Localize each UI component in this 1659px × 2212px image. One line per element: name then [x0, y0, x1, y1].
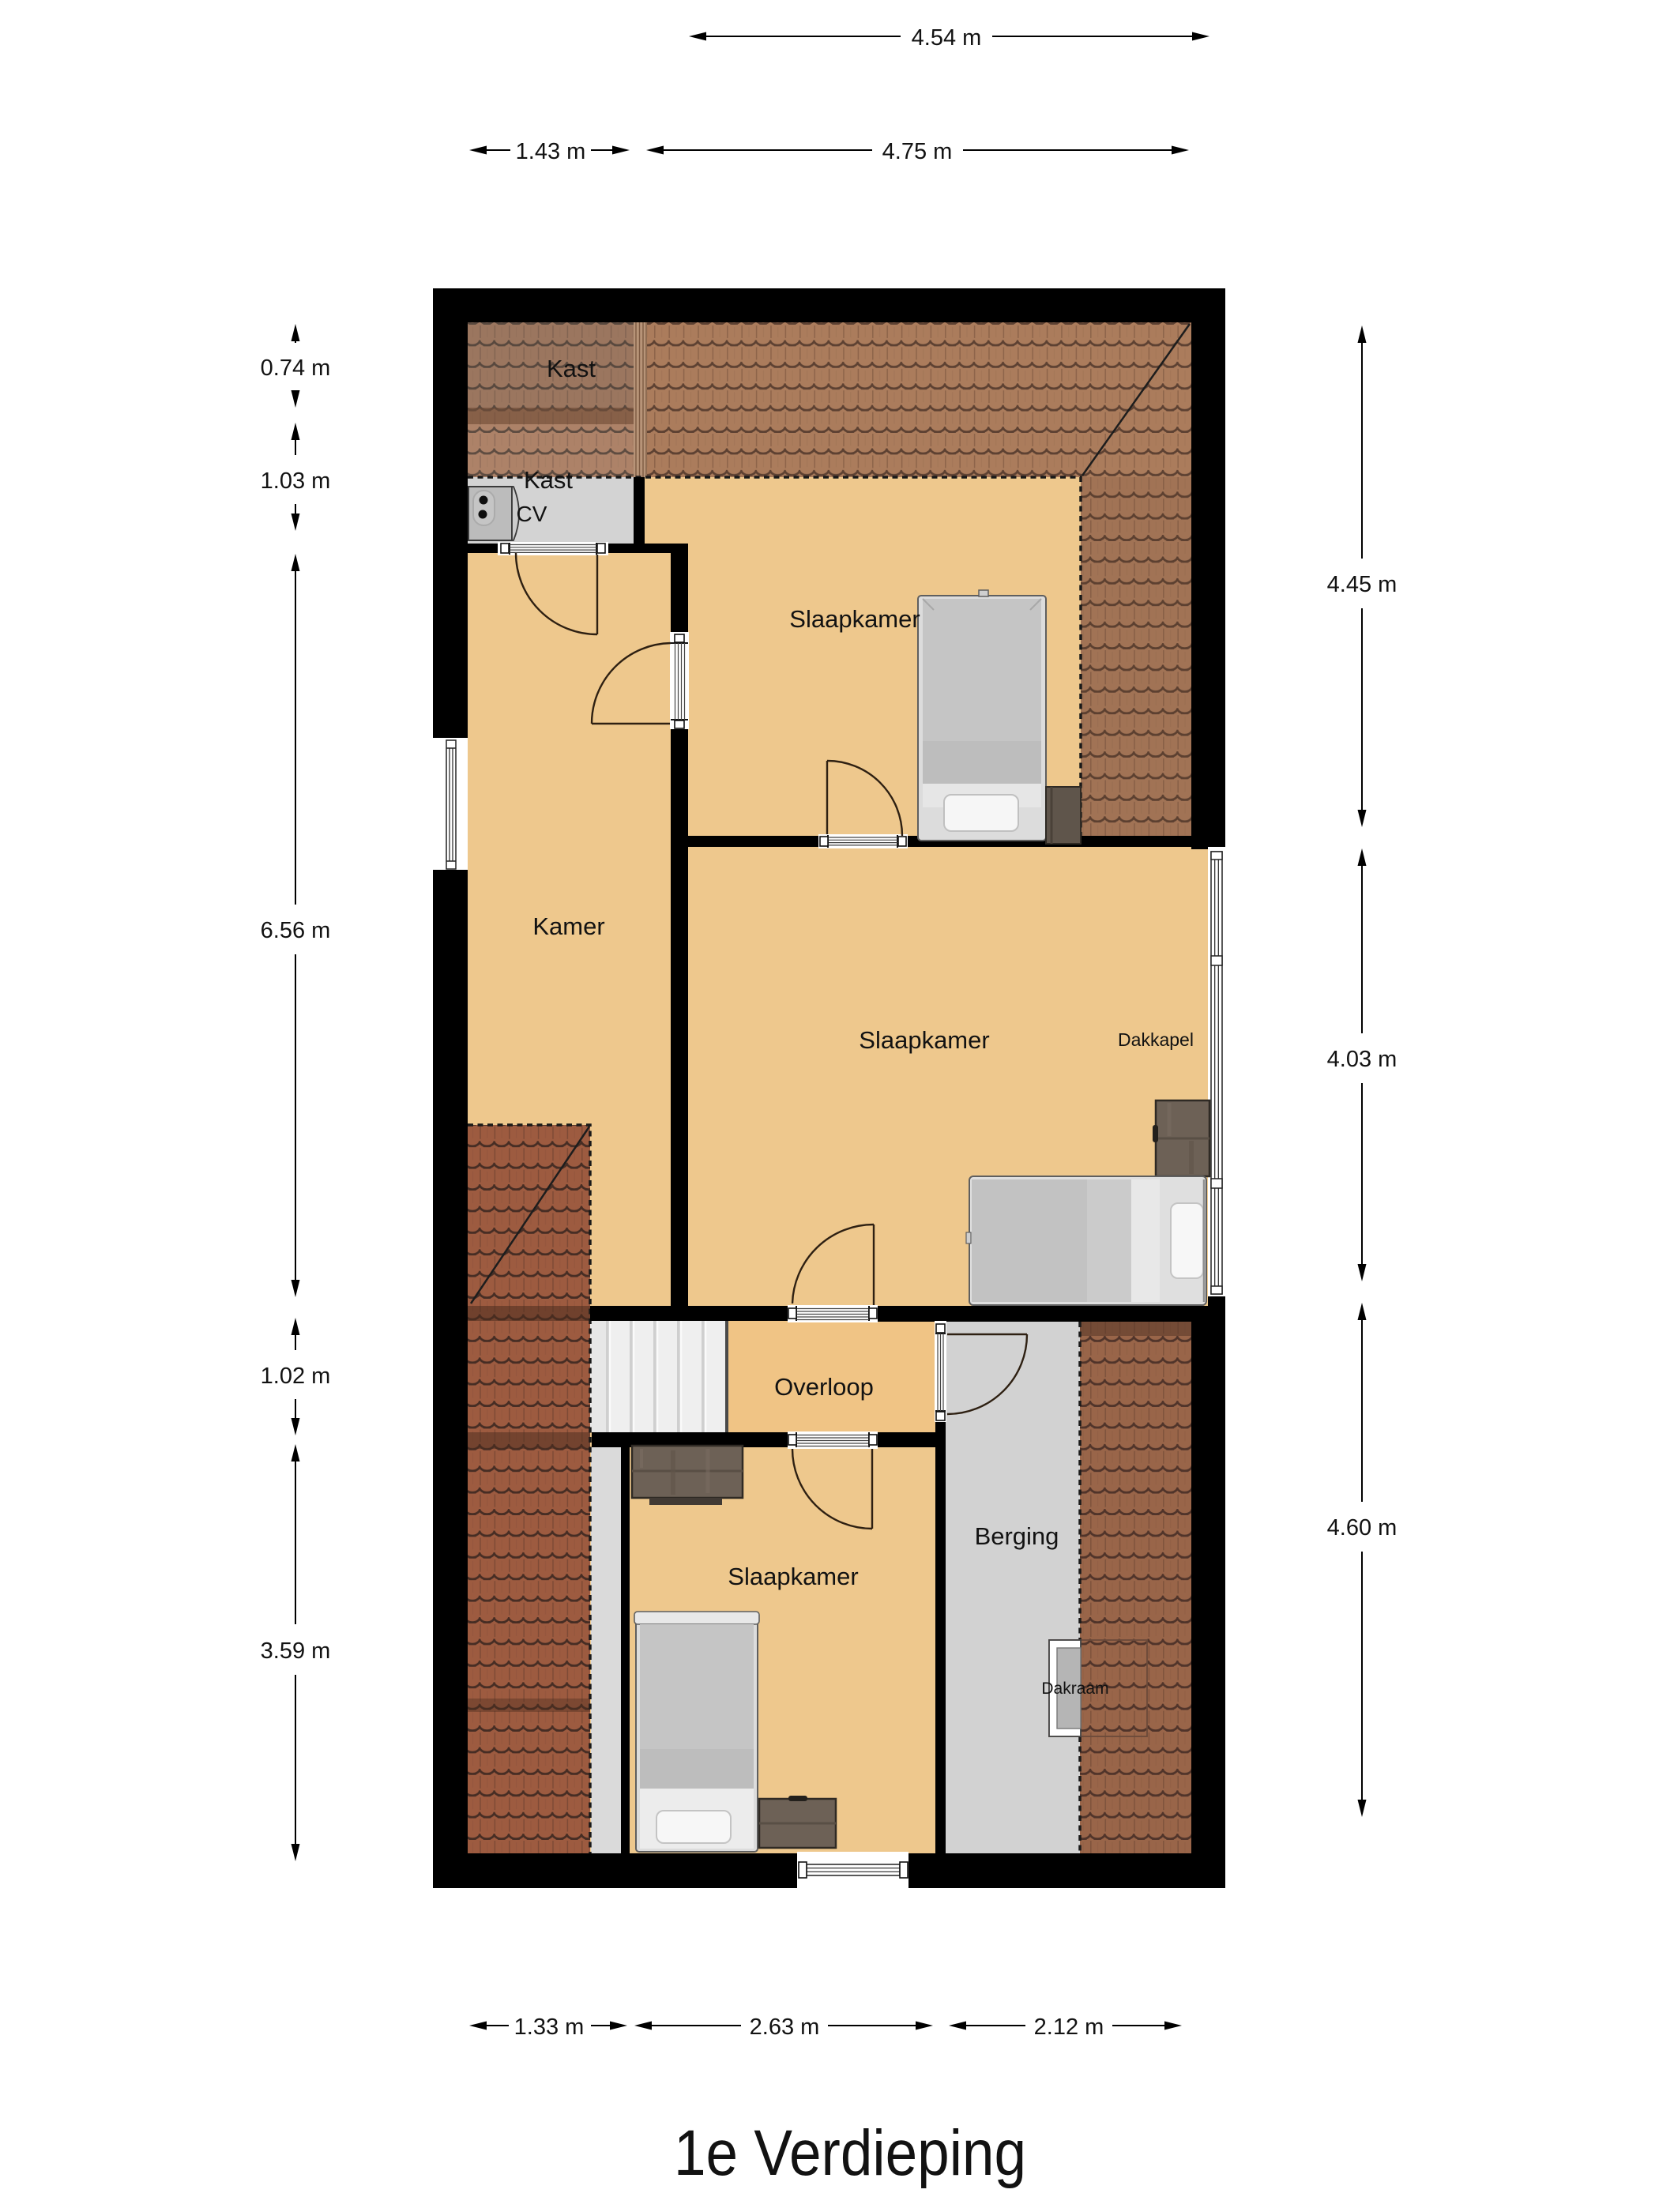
svg-text:6.56 m: 6.56 m	[261, 918, 331, 943]
svg-text:2.12 m: 2.12 m	[1034, 2014, 1104, 2040]
svg-text:4.03 m: 4.03 m	[1327, 1047, 1398, 1072]
svg-text:Berging: Berging	[975, 1522, 1059, 1550]
svg-text:4.75 m: 4.75 m	[882, 139, 953, 164]
svg-text:1.03 m: 1.03 m	[261, 468, 331, 494]
svg-text:4.60 m: 4.60 m	[1327, 1515, 1398, 1540]
svg-text:0.74 m: 0.74 m	[261, 355, 331, 381]
svg-text:4.45 m: 4.45 m	[1327, 572, 1398, 597]
svg-text:2.63 m: 2.63 m	[750, 2014, 820, 2040]
svg-text:Slaapkamer: Slaapkamer	[789, 605, 920, 633]
svg-text:Dakkapel: Dakkapel	[1118, 1029, 1194, 1050]
svg-text:1e Verdieping: 1e Verdieping	[674, 2117, 1026, 2189]
svg-text:Kast: Kast	[524, 466, 573, 494]
svg-text:Slaapkamer: Slaapkamer	[859, 1026, 989, 1054]
svg-text:1.02 m: 1.02 m	[261, 1364, 331, 1389]
svg-text:Overloop: Overloop	[774, 1373, 874, 1401]
svg-text:1.43 m: 1.43 m	[516, 139, 586, 164]
svg-text:4.54 m: 4.54 m	[912, 25, 982, 51]
svg-text:Dakraam: Dakraam	[1041, 1680, 1108, 1698]
svg-text:3.59 m: 3.59 m	[261, 1638, 331, 1664]
svg-text:Kast: Kast	[547, 355, 596, 382]
svg-text:CV: CV	[517, 502, 547, 526]
svg-text:Slaapkamer: Slaapkamer	[728, 1563, 858, 1590]
svg-text:Kamer: Kamer	[532, 912, 604, 940]
svg-text:1.33 m: 1.33 m	[514, 2014, 585, 2040]
